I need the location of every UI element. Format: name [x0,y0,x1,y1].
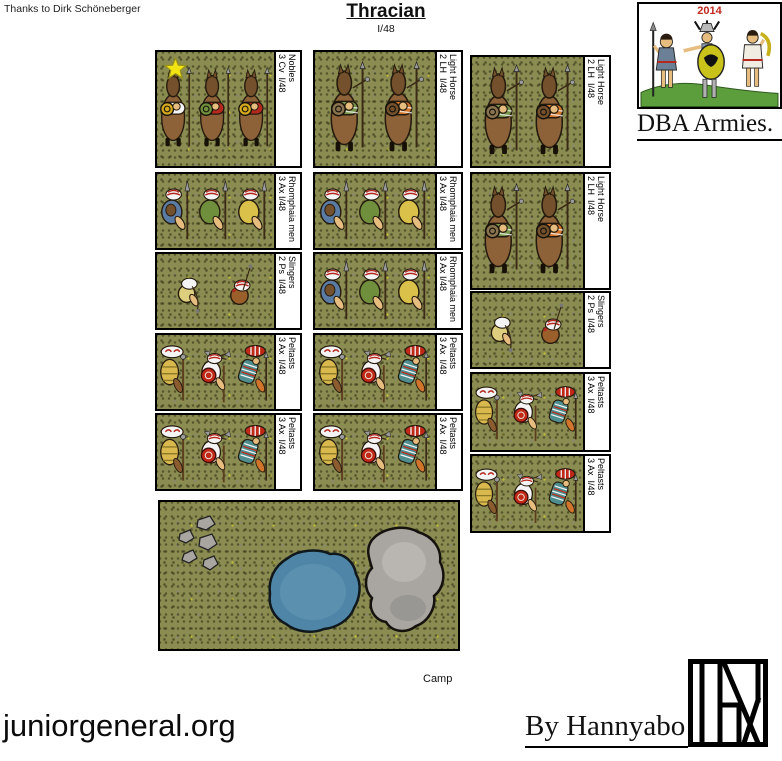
light-horse-figure [480,181,524,281]
light-horse-figure [531,181,575,281]
rhomphaia-man-figure [396,259,433,323]
unit-card-ax-rhomphaia: 3 Ax I/48 Rhomphaia men [313,172,463,250]
author-credit: By Hannyabo [525,710,688,748]
peltast-figure [395,420,434,484]
unit-card-ax-peltasts: 3 Ax I/48 Peltasts [313,413,463,491]
unit-code: 3 Ax I/48 [438,176,448,248]
unit-card-lh-lighthorse: 2 LH I/48 Light Horse [470,172,611,290]
unit-code: 2 LH I/48 [438,54,448,166]
slinger-figure [172,259,209,323]
slinger-figure [534,298,571,362]
unit-base-art [472,174,583,288]
peltast-figure [196,340,235,404]
unit-label-strip: 3 Ax I/48 Peltasts [274,415,300,489]
camp-card [158,500,460,651]
rhomphaia-man-figure [318,179,355,243]
unit-label-strip: 2 Ps I/48 Slingers [274,254,300,328]
unit-name: Slingers [287,256,297,328]
dba-logo-figures [639,19,780,107]
camp-base-art [160,502,458,649]
unit-label-strip: 3 Ax I/48 Peltasts [274,335,300,409]
unit-label-strip: 3 Ax I/48 Peltasts [435,335,461,409]
unit-code: 3 Ax I/48 [438,337,448,409]
unit-card-ax-peltasts: 3 Ax I/48 Peltasts [155,413,302,491]
peltast-figure [157,340,196,404]
unit-code: 2 Ps I/48 [277,256,287,328]
site-name: juniorgeneral.org [3,708,236,744]
logo-year: 2014 [639,5,780,17]
unit-code: 3 Ax I/48 [586,458,596,531]
unit-base-art [157,335,274,409]
hannyabo-monogram-icon [687,658,769,748]
unit-label-strip: 2 Ps I/48 Slingers [583,293,609,367]
dba-armies-caption: DBA Armies. [637,110,782,141]
unit-card-lh-lighthorse: 2 LH I/48 Light Horse [313,50,463,168]
unit-code: 2 Ps I/48 [586,295,596,367]
camp-terrain-art [160,502,458,649]
camp-label: Camp [423,673,452,685]
rhomphaia-man-figure [357,259,394,323]
unit-name: Peltasts [596,376,606,450]
rhomphaia-man-figure [357,179,394,243]
peltast-figure [356,420,395,484]
rhomphaia-man-figure [197,179,234,243]
light-horse-figure [480,62,524,162]
unit-name: Light Horse [596,176,606,288]
dba-logo-art [639,19,780,107]
unit-card-ax-peltasts: 3 Ax I/48 Peltasts [155,333,302,411]
unit-name: Rhomphaia men [448,256,458,328]
unit-card-ps-slingers: 2 Ps I/48 Slingers [155,252,302,330]
dba-armies-logo-box: 2014 [637,2,782,109]
unit-label-strip: 2 LH I/48 Light Horse [435,52,461,166]
unit-card-ax-rhomphaia: 3 Ax I/48 Rhomphaia men [313,252,463,330]
thanks-note: Thanks to Dirk Schöneberger [4,3,141,15]
unit-name: Rhomphaia men [448,176,458,248]
unit-label-strip: 3 Ax I/48 Peltasts [435,415,461,489]
unit-base-art [157,415,274,489]
unit-base-art [315,335,435,409]
rhomphaia-man-figure [159,179,196,243]
unit-base-art [472,374,583,450]
peltast-figure [196,420,235,484]
peltast-figure [316,340,355,404]
unit-code: 3 Ax I/48 [277,417,287,489]
unit-name: Light Horse [448,54,458,166]
cavalry-figure [235,59,274,159]
unit-name: Light Horse [596,59,606,166]
unit-label-strip: 3 Cv I/48 Nobles [274,52,300,166]
peltast-figure [157,420,196,484]
slinger-figure [223,259,260,323]
unit-card-ax-peltasts: 3 Ax I/48 Peltasts [313,333,463,411]
peltast-figure [356,340,395,404]
unit-base-art [315,254,435,328]
unit-label-strip: 3 Ax I/48 Rhomphaia men [274,174,300,248]
unit-code: 2 LH I/48 [586,59,596,166]
unit-card-ax-peltasts: 3 Ax I/48 Peltasts [470,454,611,533]
general-star-icon [164,57,187,80]
unit-base-art [472,456,583,531]
unit-name: Slingers [596,295,606,367]
peltast-figure [235,340,274,404]
unit-card-cv-nobles: 3 Cv I/48 Nobles [155,50,302,168]
peltast-figure [472,462,509,526]
unit-card-ps-slingers: 2 Ps I/48 Slingers [470,291,611,369]
light-horse-figure [326,59,370,159]
unit-label-strip: 2 LH I/48 Light Horse [583,174,609,288]
peltast-figure [316,420,355,484]
unit-base-art [157,174,274,248]
peltast-figure [546,462,583,526]
unit-base-art [472,293,583,367]
rhomphaia-man-figure [236,179,273,243]
slinger-figure [485,298,522,362]
army-list-code: I/48 [300,23,472,35]
light-horse-figure [531,62,575,162]
unit-base-art [472,57,583,166]
peltast-figure [472,380,509,444]
unit-label-strip: 3 Ax I/48 Peltasts [583,456,609,531]
unit-code: 3 Ax I/48 [277,337,287,409]
peltast-figure [235,420,274,484]
unit-label-strip: 3 Ax I/48 Rhomphaia men [435,174,461,248]
page-title: Thracian [300,1,472,23]
unit-base-art [315,52,435,166]
light-horse-figure [380,59,424,159]
unit-card-ax-peltasts: 3 Ax I/48 Peltasts [470,372,611,452]
unit-name: Peltasts [596,458,606,531]
unit-name: Peltasts [448,417,458,489]
unit-code: 3 Ax I/48 [438,417,448,489]
unit-name: Nobles [287,54,297,166]
unit-name: Rhomphaia men [287,176,297,248]
unit-card-lh-lighthorse: 2 LH I/48 Light Horse [470,55,611,168]
unit-base-art [315,415,435,489]
unit-name: Peltasts [287,337,297,409]
unit-label-strip: 3 Ax I/48 Rhomphaia men [435,254,461,328]
unit-base-art [315,174,435,248]
rhomphaia-man-figure [318,259,355,323]
peltast-figure [395,340,434,404]
cavalry-figure [196,59,235,159]
unit-name: Peltasts [448,337,458,409]
army-sheet: Thanks to Dirk Schöneberger Thracian I/4… [0,0,782,761]
unit-code: 3 Ax I/48 [438,256,448,328]
peltast-figure [509,380,546,444]
peltast-figure [509,462,546,526]
unit-base-art [157,254,274,328]
rhomphaia-man-figure [396,179,433,243]
unit-label-strip: 3 Ax I/48 Peltasts [583,374,609,450]
unit-name: Peltasts [287,417,297,489]
unit-label-strip: 2 LH I/48 Light Horse [583,57,609,166]
unit-code: 3 Cv I/48 [277,54,287,166]
unit-code: 2 LH I/48 [586,176,596,288]
unit-code: 3 Ax I/48 [586,376,596,450]
unit-code: 3 Ax I/48 [277,176,287,248]
peltast-figure [546,380,583,444]
unit-card-ax-rhomphaia: 3 Ax I/48 Rhomphaia men [155,172,302,250]
